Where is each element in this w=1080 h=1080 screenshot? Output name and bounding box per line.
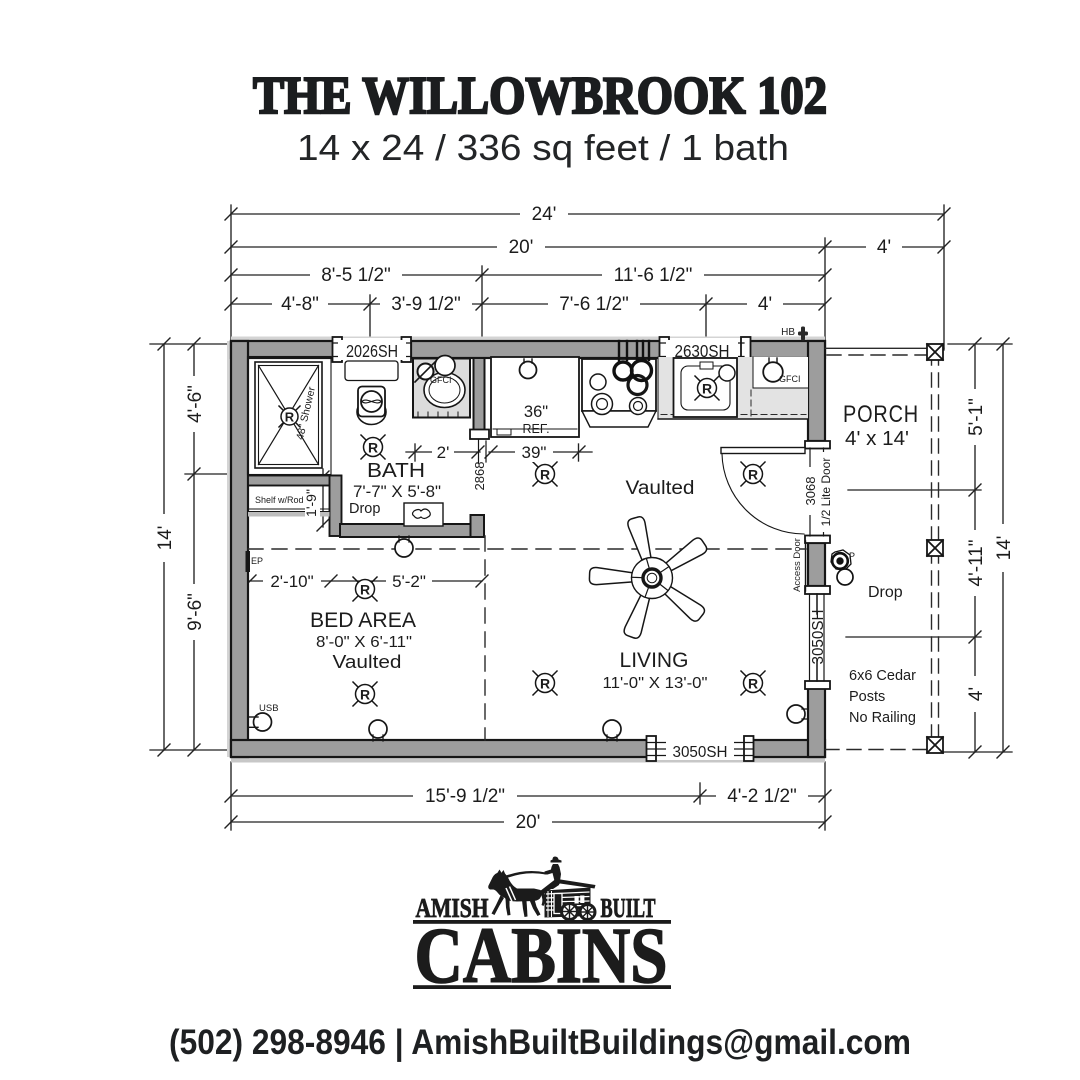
svg-text:15'-9 1/2": 15'-9 1/2" <box>425 786 505 807</box>
svg-text:R: R <box>540 467 550 483</box>
svg-text:P: P <box>849 551 855 561</box>
svg-text:R: R <box>360 687 370 703</box>
svg-text:Drop: Drop <box>349 501 380 517</box>
svg-text:4'-2 1/2": 4'-2 1/2" <box>727 786 797 807</box>
svg-text:Vaulted: Vaulted <box>626 478 695 499</box>
svg-text:Vaulted: Vaulted <box>333 652 402 672</box>
svg-text:4': 4' <box>758 294 772 315</box>
svg-text:3068: 3068 <box>803 477 818 506</box>
svg-text:Posts: Posts <box>849 689 885 705</box>
svg-text:GFCI: GFCI <box>779 374 801 384</box>
svg-text:2868: 2868 <box>472 462 487 491</box>
svg-text:4' x 14': 4' x 14' <box>845 428 909 450</box>
svg-text:2026SH: 2026SH <box>346 341 398 361</box>
svg-text:Shelf w/Rod: Shelf w/Rod <box>255 495 304 505</box>
svg-text:Drop: Drop <box>868 584 903 601</box>
svg-text:36": 36" <box>524 403 548 421</box>
svg-text:REF.: REF. <box>522 422 549 436</box>
svg-text:14': 14' <box>994 536 1015 561</box>
svg-text:3050SH: 3050SH <box>673 744 728 761</box>
svg-text:8'-0" X 6'-11": 8'-0" X 6'-11" <box>316 634 412 651</box>
svg-text:GFCI: GFCI <box>430 375 452 385</box>
svg-text:9'-6": 9'-6" <box>185 593 206 631</box>
svg-text:3'-9 1/2": 3'-9 1/2" <box>391 294 461 315</box>
svg-text:HB: HB <box>781 327 795 338</box>
svg-text:No Railing: No Railing <box>849 710 916 726</box>
svg-text:4': 4' <box>966 687 987 701</box>
svg-text:20': 20' <box>509 237 534 258</box>
svg-text:5'-2": 5'-2" <box>392 572 426 591</box>
svg-text:4'-8": 4'-8" <box>281 294 319 315</box>
svg-text:5'-1": 5'-1" <box>966 398 987 436</box>
svg-text:Access Door: Access Door <box>792 538 803 592</box>
svg-text:R: R <box>368 440 378 456</box>
svg-text:PORCH: PORCH <box>843 401 919 428</box>
svg-text:BATH: BATH <box>367 460 425 482</box>
svg-text:R: R <box>748 467 758 483</box>
svg-text:20': 20' <box>516 812 541 833</box>
svg-text:4'-6": 4'-6" <box>185 385 206 423</box>
svg-text:THE WILLOWBROOK 102: THE WILLOWBROOK 102 <box>253 67 827 125</box>
svg-text:(502) 298-8946 | AmishBuiltBui: (502) 298-8946 | AmishBuiltBuildings@gma… <box>169 1023 911 1062</box>
svg-text:11'-6 1/2": 11'-6 1/2" <box>614 265 693 286</box>
svg-text:4': 4' <box>877 237 891 258</box>
svg-text:2': 2' <box>437 443 450 462</box>
svg-text:BED AREA: BED AREA <box>310 609 416 632</box>
svg-text:R: R <box>748 676 758 692</box>
svg-text:8'-5 1/2": 8'-5 1/2" <box>321 265 391 286</box>
svg-text:7'-7" X 5'-8": 7'-7" X 5'-8" <box>353 482 441 501</box>
svg-text:14 x 24 / 336 sq feet / 1 bath: 14 x 24 / 336 sq feet / 1 bath <box>297 127 789 168</box>
svg-text:EP: EP <box>251 556 263 566</box>
svg-text:4'-11": 4'-11" <box>966 540 987 587</box>
svg-text:USB: USB <box>259 703 279 714</box>
svg-text:24': 24' <box>532 204 557 225</box>
svg-text:14': 14' <box>155 526 176 551</box>
svg-text:R: R <box>702 381 712 397</box>
svg-text:R: R <box>360 582 370 598</box>
svg-text:R: R <box>540 676 550 692</box>
svg-text:LIVING: LIVING <box>620 649 689 672</box>
svg-text:2'-10": 2'-10" <box>270 572 313 591</box>
svg-text:1/2 Lite Door: 1/2 Lite Door <box>819 458 833 527</box>
svg-text:6x6 Cedar: 6x6 Cedar <box>849 668 916 684</box>
svg-text:1'-9": 1'-9" <box>303 489 319 517</box>
svg-text:7'-6 1/2": 7'-6 1/2" <box>559 294 629 315</box>
svg-text:39": 39" <box>522 443 547 462</box>
svg-text:11'-0" X 13'-0": 11'-0" X 13'-0" <box>603 675 708 692</box>
svg-text:3050SH: 3050SH <box>810 610 827 665</box>
svg-text:R: R <box>285 410 295 425</box>
